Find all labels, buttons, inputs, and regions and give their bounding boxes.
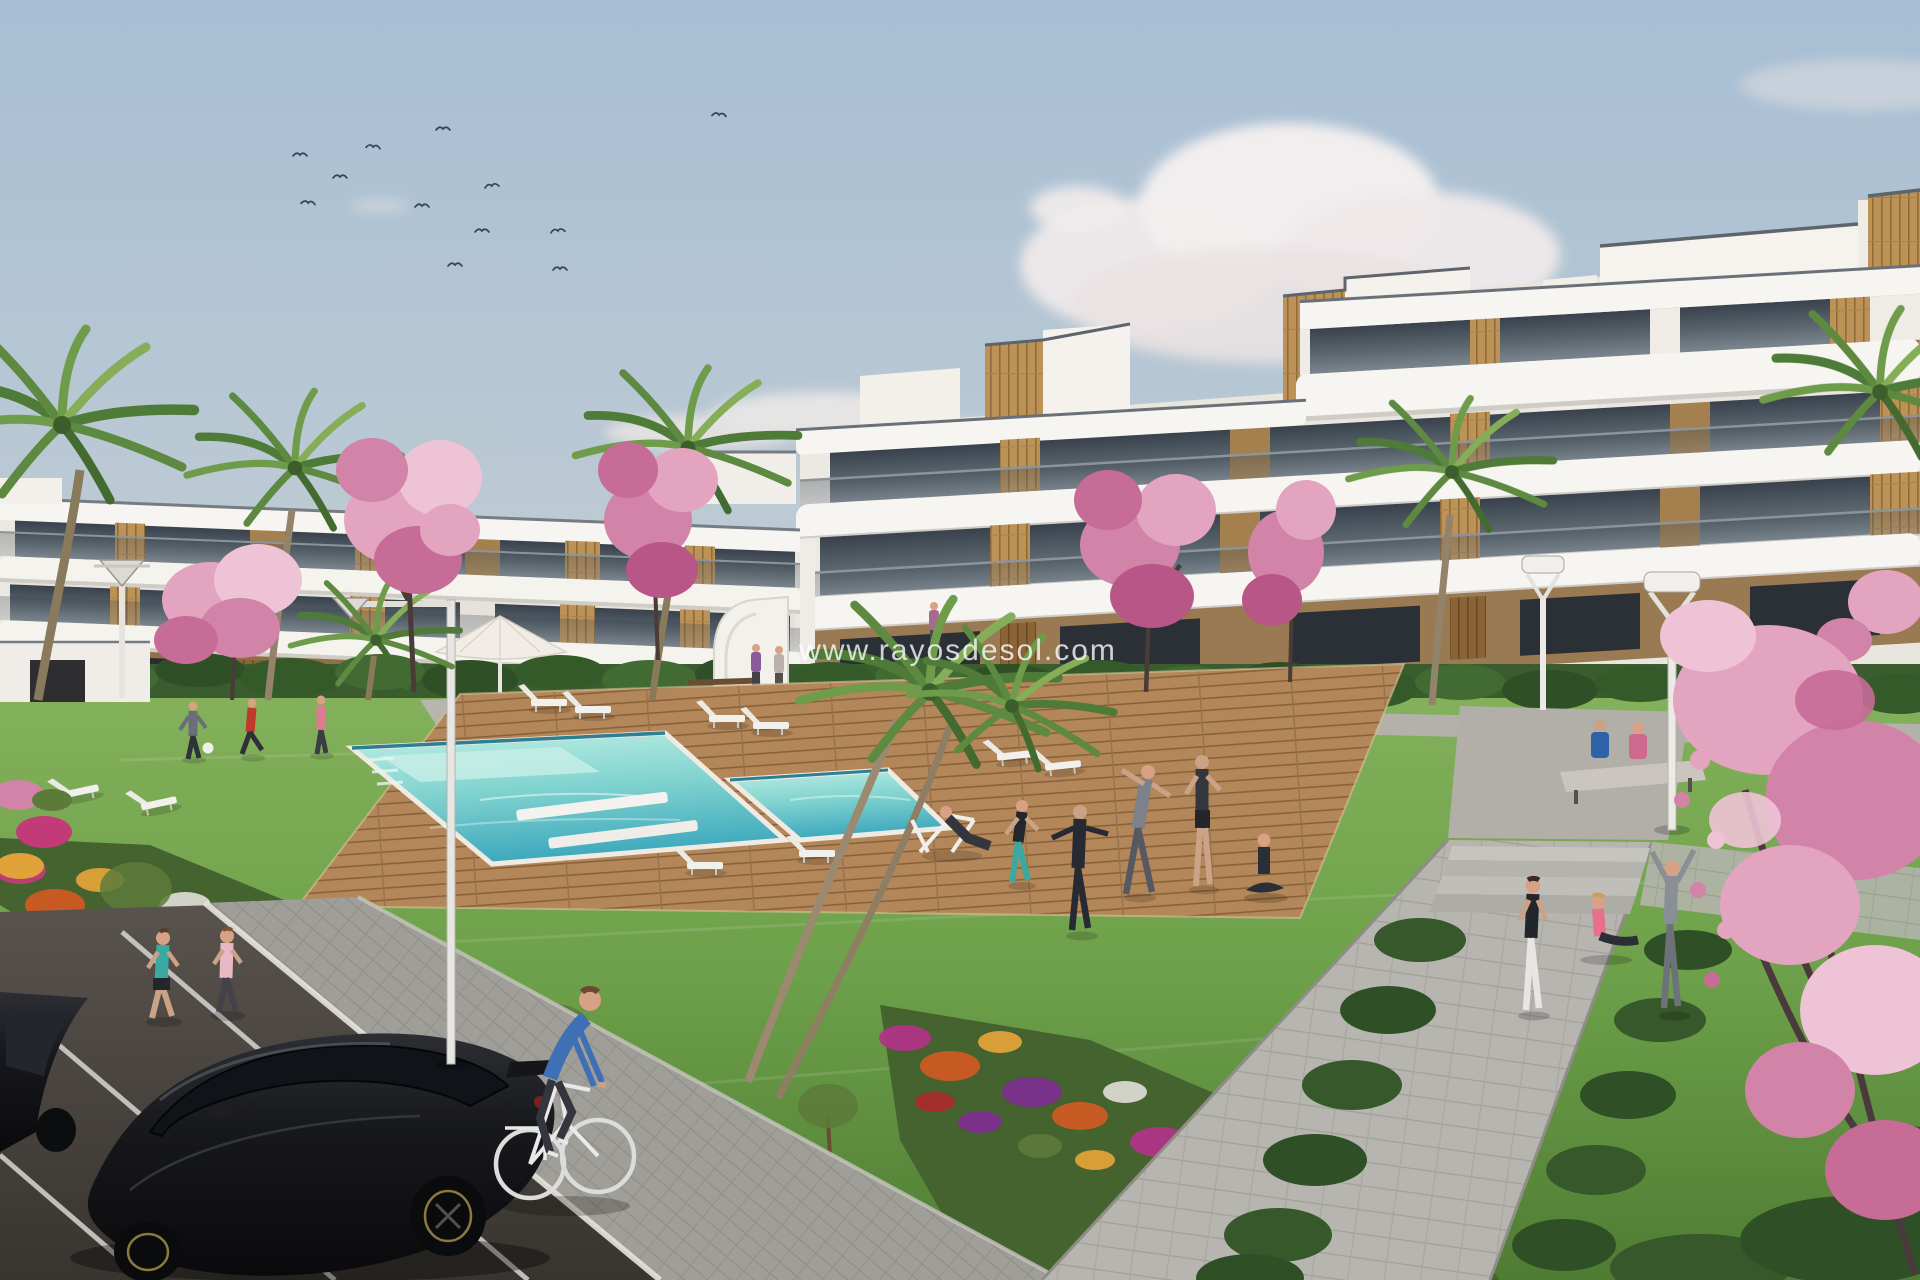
watermark-text: www.rayosdesol.com bbox=[798, 634, 1117, 667]
terrace-wall bbox=[0, 642, 150, 702]
render-image: www.rayosdesol.com bbox=[0, 0, 1920, 1280]
